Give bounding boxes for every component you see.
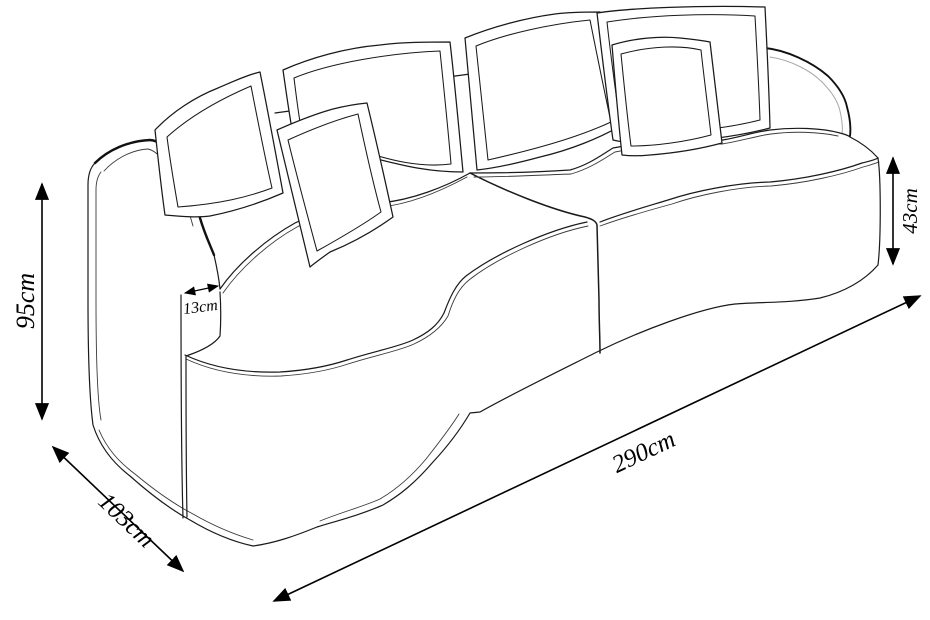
- sofa-dimension-diagram: 95cm 103cm 290cm 43cm 13cm: [0, 0, 930, 620]
- diagram-canvas: 95cm 103cm 290cm 43cm 13cm: [0, 0, 930, 620]
- front-pillow-right: [612, 37, 722, 155]
- back-pillow-1: [155, 72, 283, 217]
- dimension-label-seat-height: 43cm: [898, 188, 922, 234]
- dimension-label-depth: 103cm: [93, 488, 160, 553]
- dimension-label-height: 95cm: [11, 273, 40, 329]
- dimension-label-width: 290cm: [608, 426, 680, 479]
